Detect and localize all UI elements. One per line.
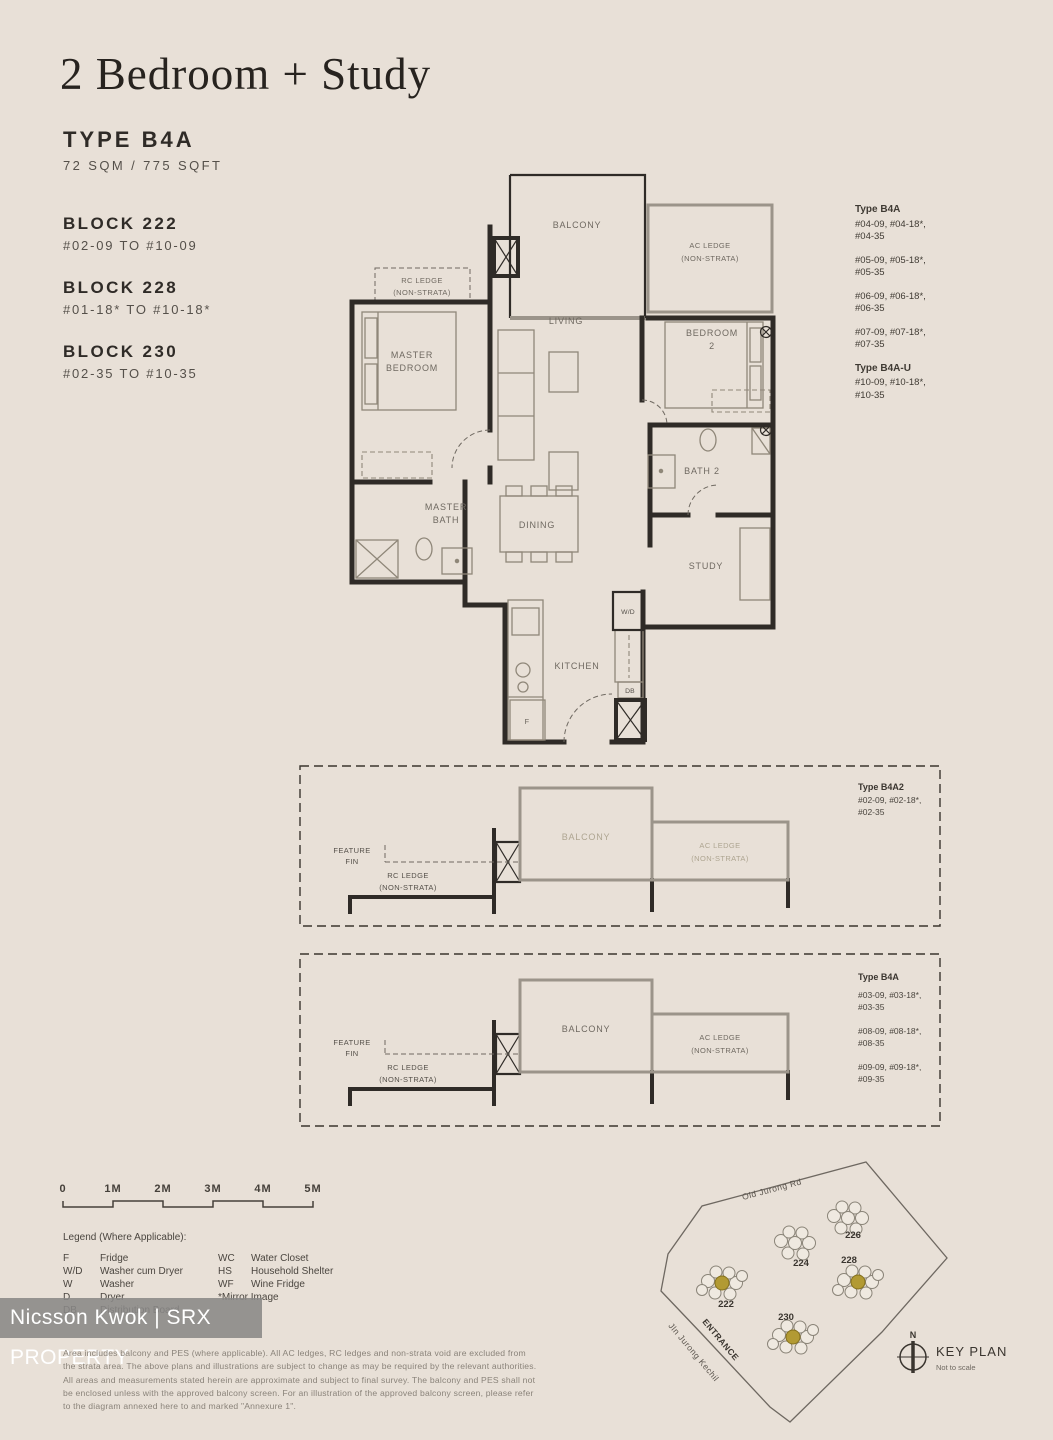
stack-group-title: Type B4A-U: [855, 363, 975, 376]
master-bath-label: MASTER: [425, 502, 467, 512]
rc-ledge-label: RC LEDGE: [387, 1063, 429, 1072]
svg-text:#03-35: #03-35: [858, 1002, 885, 1012]
svg-text:0: 0: [59, 1183, 66, 1195]
cluster-224: [775, 1226, 816, 1260]
key-plan-title: KEY PLAN: [936, 1344, 1007, 1359]
stack-entry: #05-09, #05-18*, #05-35: [855, 255, 975, 280]
legend-title: Legend (Where Applicable):: [63, 1232, 483, 1243]
balcony-ghost-label: BALCONY: [562, 832, 611, 842]
wd-label: W/D: [621, 609, 635, 616]
road-label-old-jurong: Old Jurong Rd: [741, 1176, 803, 1202]
bath2-fixtures: [648, 428, 770, 488]
compass-n-label: N: [910, 1330, 917, 1340]
kitchen-label: KITCHEN: [554, 661, 599, 671]
highlighted-unit-230: [786, 1330, 800, 1344]
floorplan-sheet: 2 Bedroom + Study TYPE B4A 72 SQM / 775 …: [0, 0, 1053, 1440]
balcony-label: BALCONY: [562, 1024, 611, 1034]
fridge-label: F: [525, 717, 530, 726]
rc-ledge-label: (NON-STRATA): [379, 1075, 437, 1084]
stack-entry: #04-09, #04-18*, #04-35: [855, 219, 975, 244]
master-bedroom-label: BEDROOM: [386, 363, 438, 373]
block-230-range: #02-35 TO #10-35: [63, 366, 198, 381]
section-geometry: [350, 980, 788, 1104]
ac-ledge-ghost-label: (NON-STRATA): [691, 854, 749, 863]
key-plan: Old Jurong Rd Jln Jurong Kechil ENTRANCE: [648, 1148, 1050, 1440]
section-detail-upper: FEATURE FIN RC LEDGE (NON-STRATA) BALCON…: [295, 762, 945, 930]
master-bath-label: BATH: [433, 515, 460, 525]
cluster-label-230: 230: [778, 1312, 794, 1323]
rc-ledge-label: (NON-STRATA): [393, 288, 451, 297]
rc-ledge-label: (NON-STRATA): [379, 883, 437, 892]
rc-ledge-label: RC LEDGE: [401, 276, 443, 285]
svg-text:#02-09, #02-18*,: #02-09, #02-18*,: [858, 795, 921, 805]
bedroom2-label: BEDROOM: [686, 328, 738, 338]
study-desk: [740, 528, 770, 600]
scale-bar: 0 1M 2M 3M 4M 5M: [55, 1175, 355, 1220]
svg-text:5M: 5M: [304, 1183, 321, 1195]
block-222-name: BLOCK 222: [63, 214, 178, 234]
block-228-range: #01-18* TO #10-18*: [63, 302, 211, 317]
key-plan-subtitle: Not to scale: [936, 1363, 976, 1372]
door-swings: [452, 400, 718, 742]
floor-plan: BALCONY AC LEDGE (NON-STRATA) RC LEDGE (…: [340, 160, 790, 760]
svg-text:4M: 4M: [254, 1183, 271, 1195]
section-units: Type B4A #03-09, #03-18*, #03-35 #08-09,…: [858, 972, 921, 1084]
disclaimer-text: Area includes balcony and PES (where app…: [63, 1347, 538, 1414]
unit-area: 72 SQM / 775 SQFT: [63, 158, 222, 173]
feature-fin-label: FEATURE: [333, 1038, 370, 1047]
ac-fan-symbols: [761, 327, 772, 436]
block-222-range: #02-09 TO #10-09: [63, 238, 198, 253]
section-units-ghost: Type B4A2 #02-09, #02-18*, #02-35: [858, 782, 921, 817]
svg-text:2M: 2M: [154, 1183, 171, 1195]
balcony-label: BALCONY: [553, 220, 602, 230]
master-bed: [362, 312, 456, 410]
cluster-230: [768, 1320, 819, 1354]
bath2-label: BATH 2: [684, 466, 720, 476]
master-bath-fixtures: [356, 538, 472, 578]
cluster-label-224: 224: [793, 1258, 810, 1269]
master-wardrobe: [362, 452, 432, 478]
bedroom2-label: 2: [709, 341, 715, 351]
shaft-column: [494, 238, 518, 276]
svg-text:#08-35: #08-35: [858, 1038, 885, 1048]
block-228-name: BLOCK 228: [63, 278, 178, 298]
living-label: LIVING: [549, 316, 583, 326]
cluster-label-228: 228: [841, 1255, 857, 1266]
db-label: DB: [625, 688, 635, 695]
balcony-walls: [510, 175, 645, 318]
ac-ledge-label: (NON-STRATA): [691, 1046, 749, 1055]
feature-fin-label: FIN: [345, 1049, 358, 1058]
svg-text:#08-09, #08-18*,: #08-09, #08-18*,: [858, 1026, 921, 1036]
svg-text:#02-35: #02-35: [858, 807, 885, 817]
cluster-label-222: 222: [718, 1299, 734, 1310]
compass-icon: N: [897, 1330, 929, 1373]
dining-label: DINING: [519, 520, 555, 530]
cluster-label-226: 226: [845, 1230, 861, 1241]
section-detail-lower: FEATURE FIN RC LEDGE (NON-STRATA) BALCON…: [295, 950, 945, 1132]
stack-entry: #10-09, #10-18*, #10-35: [855, 377, 975, 402]
highlighted-unit-228: [851, 1275, 865, 1289]
stack-list: Type B4A #04-09, #04-18*, #04-35 #05-09,…: [855, 204, 975, 413]
study-label: STUDY: [689, 561, 724, 571]
feature-fin-label: FEATURE: [333, 846, 370, 855]
svg-text:1M: 1M: [104, 1183, 121, 1195]
living-furniture: [498, 330, 578, 490]
feature-fin-label: FIN: [345, 857, 358, 866]
svg-text:Type B4A: Type B4A: [858, 972, 899, 982]
master-bedroom-label: MASTER: [391, 350, 433, 360]
svg-text:#03-09, #03-18*,: #03-09, #03-18*,: [858, 990, 921, 1000]
svg-text:Type B4A2: Type B4A2: [858, 782, 904, 792]
stack-group-title: Type B4A: [855, 204, 975, 217]
watermark: Nicsson Kwok | SRX PROPERTY: [0, 1298, 262, 1338]
ac-ledge-label: AC LEDGE: [689, 241, 730, 250]
page-title: 2 Bedroom + Study: [60, 48, 431, 100]
section-geometry: [350, 788, 788, 912]
rc-ledge-label: RC LEDGE: [387, 871, 429, 880]
svg-text:#09-35: #09-35: [858, 1074, 885, 1084]
ac-ledge-label: AC LEDGE: [699, 1033, 740, 1042]
scale-steps: [63, 1201, 313, 1207]
section-border: [300, 766, 940, 926]
stack-entry: #07-09, #07-18*, #07-35: [855, 327, 975, 352]
svg-text:#09-09, #09-18*,: #09-09, #09-18*,: [858, 1062, 921, 1072]
cluster-222: [697, 1266, 748, 1300]
svg-text:3M: 3M: [204, 1183, 221, 1195]
highlighted-unit-222: [715, 1276, 729, 1290]
block-230-name: BLOCK 230: [63, 342, 178, 362]
unit-type-label: TYPE B4A: [63, 127, 195, 153]
ac-ledge-label: (NON-STRATA): [681, 254, 739, 263]
stack-entry: #06-09, #06-18*, #06-35: [855, 291, 975, 316]
ac-ledge-ghost-label: AC LEDGE: [699, 841, 740, 850]
cluster-228: [833, 1265, 884, 1299]
